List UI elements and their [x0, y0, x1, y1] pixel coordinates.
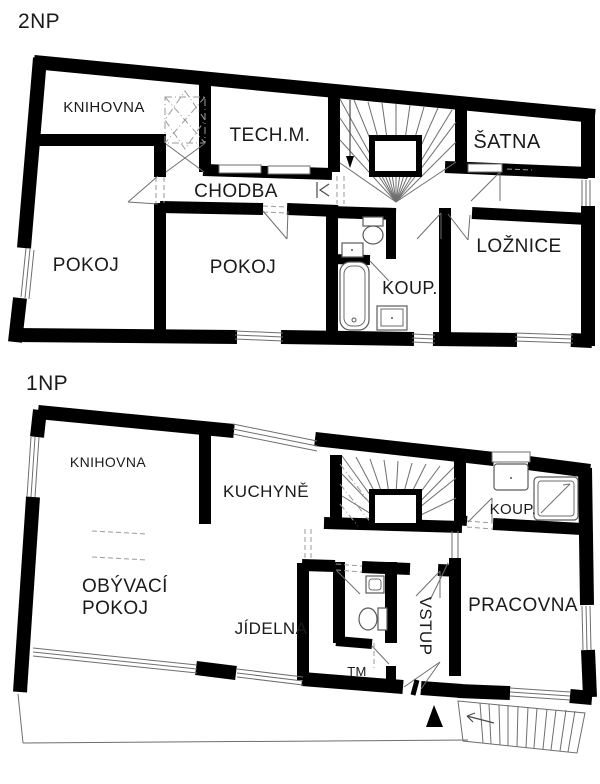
room-label-satna: ŠATNA	[473, 130, 540, 153]
room-label-knihovna-1np: KNIHOVNA	[70, 454, 147, 470]
room-label-knihovna-2np: KNIHOVNA	[63, 99, 145, 116]
stair-void-2np	[372, 138, 419, 174]
room-label-pokoj-west: POKOJ	[53, 255, 119, 276]
room-label-pracovna: PRACOVNA	[468, 595, 578, 616]
toilet-tank-2np	[363, 217, 383, 226]
site-elements	[18, 694, 585, 753]
room-label-obyvaci-line2: POKOJ	[82, 598, 148, 619]
floor-title-2np: 2NP	[18, 10, 60, 33]
room-label-loznice: LOŽNICE	[476, 235, 561, 257]
floorplan-drawing: 2NP KNIHOVNA TECH.M. ŠATNA CHODBA POKOJ …	[0, 0, 600, 784]
room-label-obyvaci-line1: OBÝVACÍ	[82, 576, 168, 597]
toilet-1np	[359, 608, 377, 630]
corridor-arrow	[320, 184, 329, 196]
staircase-2np	[340, 99, 456, 202]
entrance-marker-triangle	[426, 705, 443, 727]
interior-window-techm-2	[268, 166, 310, 174]
koup-niche-1np	[492, 452, 530, 462]
room-label-koup-1np: KOUP.	[490, 501, 537, 518]
staircase-1np	[340, 456, 456, 528]
terrace-edge-left	[18, 694, 23, 743]
room-label-kuchyne: KUCHYNĚ	[223, 482, 309, 501]
floor-plan-1np: 1NP KNIHOVNA KUCHYNĚ KOUP. OBÝVACÍ POKOJ…	[18, 372, 592, 753]
satna-door-slot	[468, 164, 502, 172]
room-label-koup-2np: KOUP.	[382, 278, 438, 298]
room-label-pokoj-mid: POKOJ	[210, 257, 276, 278]
toilet-tank-1np	[378, 608, 387, 630]
terrace-edge-bottom	[23, 740, 468, 743]
exterior-stairs	[458, 701, 585, 753]
room-label-tm: TM	[347, 664, 367, 679]
floor-title-1np: 1NP	[26, 372, 68, 395]
interior-window-techm	[219, 165, 261, 173]
floor-plan-2np: 2NP KNIHOVNA TECH.M. ŠATNA CHODBA POKOJ …	[14, 10, 595, 346]
toilet-2np	[363, 226, 383, 244]
floorplan-page: 2NP KNIHOVNA TECH.M. ŠATNA CHODBA POKOJ …	[0, 0, 600, 784]
room-label-jidelna: JÍDELNA	[235, 619, 308, 638]
stair-void-1np	[372, 492, 419, 526]
room-label-vstup: VSTUP	[416, 597, 435, 656]
room-label-chodba: CHODBA	[194, 181, 278, 202]
fixtures-2np	[340, 217, 407, 330]
room-label-techm: TECH.M.	[230, 125, 311, 146]
